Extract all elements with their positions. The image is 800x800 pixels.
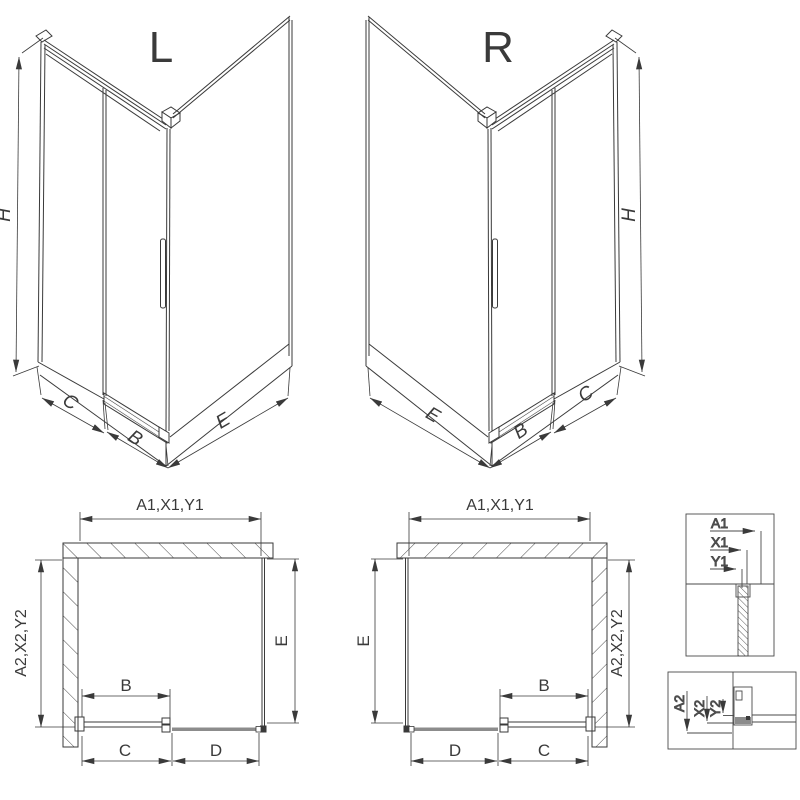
detail-top-x1: X1 [711, 534, 728, 550]
variant-right-title: R [482, 23, 514, 72]
technical-drawing-page: L H C B E R H C B E A1,X1,Y1 A2,X2,Y2 E … [0, 0, 800, 800]
plan-left-side-dim: A2,X2,Y2 [13, 609, 30, 677]
plan-left-b: B [120, 676, 131, 695]
plan-left-e: E [272, 635, 291, 646]
detail-bottom-a2: A2 [671, 695, 687, 712]
detail-bottom-x2: X2 [691, 700, 707, 717]
plan-right-top-dim: A1,X1,Y1 [466, 497, 534, 514]
plan-right-e: E [354, 635, 373, 646]
plan-right-side-dim: A2,X2,Y2 [609, 609, 626, 677]
plan-right-c: C [538, 741, 550, 760]
dim-label-height-right: H [619, 208, 640, 222]
plan-left-c: C [119, 741, 131, 760]
plan-left-d: D [210, 741, 222, 760]
plan-left-top-dim: A1,X1,Y1 [136, 497, 204, 514]
plan-right-d: D [449, 741, 461, 760]
variant-left-title: L [149, 23, 173, 72]
detail-bottom-y2: Y2 [707, 700, 723, 717]
plan-right-b: B [538, 676, 549, 695]
dim-label-height-left: H [0, 208, 15, 222]
shower-enclosure-diagram: L H C B E R H C B E A1,X1,Y1 A2,X2,Y2 E … [0, 0, 800, 800]
detail-top-y1: Y1 [711, 553, 728, 569]
detail-top-a1: A1 [711, 515, 728, 531]
